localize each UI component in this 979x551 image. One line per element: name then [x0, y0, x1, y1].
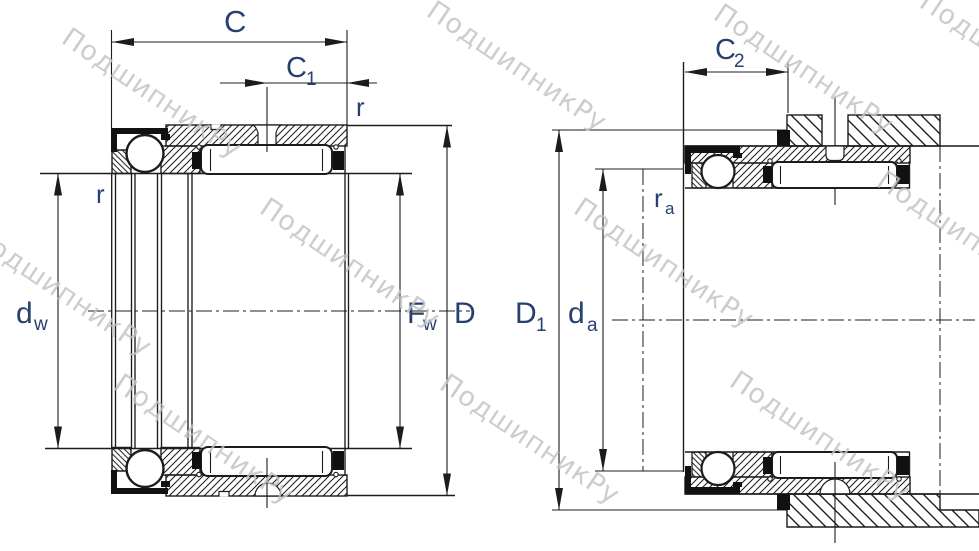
- cage-end-block: [192, 152, 201, 169]
- rivet: [768, 159, 772, 163]
- bearing-drawing-page: C C 1 r r d w F w D: [0, 0, 979, 551]
- dim-label-C1-sub: 1: [306, 69, 317, 90]
- watermark-text: ПодшипникРу: [421, 0, 613, 138]
- seal-lip: [161, 134, 170, 140]
- watermark-text: ПодшипникРу: [914, 0, 979, 129]
- dim-arrow: [245, 79, 267, 87]
- rivet: [334, 145, 338, 149]
- dim-arrow: [347, 79, 369, 87]
- ball-element: [127, 450, 164, 487]
- dim-label-dw: d: [16, 297, 33, 330]
- ball-element: [702, 452, 735, 485]
- rivet: [897, 159, 901, 163]
- outer-ring-groove-notch: [219, 492, 229, 497]
- dim-label-D: D: [454, 297, 476, 330]
- seal-lip: [733, 153, 742, 158]
- dim-label-D1: D: [515, 297, 537, 330]
- watermark-text: ПодшипникРу: [0, 220, 158, 363]
- dim-arrow: [443, 126, 451, 148]
- dim-arrow: [396, 427, 404, 449]
- watermark-text: ПодшипникРу: [434, 368, 626, 511]
- left-view-dimensions: [54, 30, 451, 496]
- dim-label-da-sub: a: [587, 315, 598, 336]
- dim-label-C2-sub: 2: [734, 51, 745, 72]
- watermark-layer: ПодшипникРу ПодшипникРу ПодшипникРу Подш…: [0, 0, 979, 511]
- bearing-technical-drawing: C C 1 r r d w F w D: [0, 0, 979, 551]
- ball-element: [702, 155, 735, 188]
- dim-arrow: [396, 174, 404, 196]
- dim-arrow: [54, 427, 62, 449]
- ball-element: [127, 135, 164, 172]
- dim-arrow: [112, 38, 134, 46]
- cage-end-block: [333, 451, 344, 470]
- dim-label-r-top: r: [356, 92, 365, 122]
- rivet: [197, 145, 201, 149]
- watermark-text: ПодшипникРу: [871, 165, 979, 308]
- cage-end-block: [763, 166, 772, 183]
- dim-label-ra: r: [654, 183, 663, 213]
- cage-end-block: [763, 457, 772, 474]
- left-view-bearing-section: C C 1 r r d w F w D: [16, 4, 476, 508]
- dim-label-dw-sub: w: [33, 314, 48, 335]
- housing-block: [787, 494, 979, 527]
- seal-lip: [733, 482, 742, 487]
- dim-label-da: d: [568, 297, 585, 330]
- dim-label-D1-sub: 1: [536, 315, 547, 336]
- rivet: [334, 472, 338, 476]
- watermark-text: ПодшипникРу: [568, 192, 760, 335]
- dim-arrow: [685, 68, 707, 76]
- lubrication-hole: [826, 146, 844, 161]
- rivet: [768, 477, 772, 481]
- cage-end-block: [333, 151, 344, 170]
- dim-arrow: [599, 169, 607, 191]
- dim-arrow: [54, 174, 62, 196]
- watermark-text: ПодшипникРу: [254, 192, 446, 335]
- dim-label-r-left: r: [96, 179, 105, 209]
- locating-snap-ring: [777, 130, 790, 146]
- housing-block: [787, 115, 822, 146]
- dim-arrow: [325, 38, 347, 46]
- dim-label-C: C: [224, 4, 246, 39]
- dim-label-ra-sub: a: [665, 199, 675, 218]
- dim-arrow: [443, 474, 451, 496]
- locating-snap-ring: [777, 494, 790, 510]
- dim-arrow: [555, 130, 563, 152]
- seal-lip: [161, 481, 170, 487]
- dim-arrow: [555, 488, 563, 510]
- dim-label-C1: C: [286, 52, 307, 84]
- rivet: [197, 472, 201, 476]
